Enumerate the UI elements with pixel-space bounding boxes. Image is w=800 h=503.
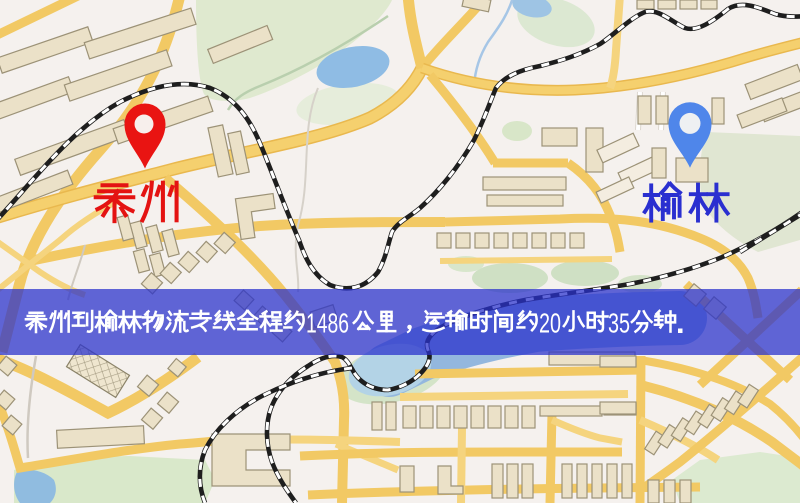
- svg-text:35: 35: [608, 308, 630, 339]
- svg-text:20: 20: [539, 308, 561, 339]
- svg-text:1486: 1486: [306, 308, 349, 339]
